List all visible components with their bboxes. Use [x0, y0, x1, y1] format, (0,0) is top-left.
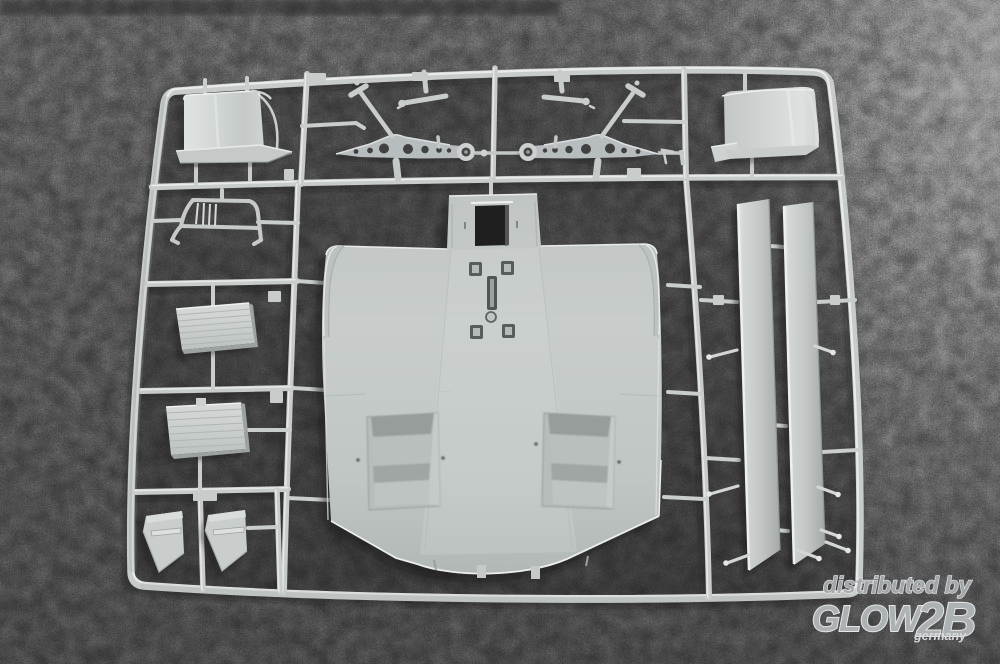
svg-text:germany: germany	[913, 629, 967, 643]
